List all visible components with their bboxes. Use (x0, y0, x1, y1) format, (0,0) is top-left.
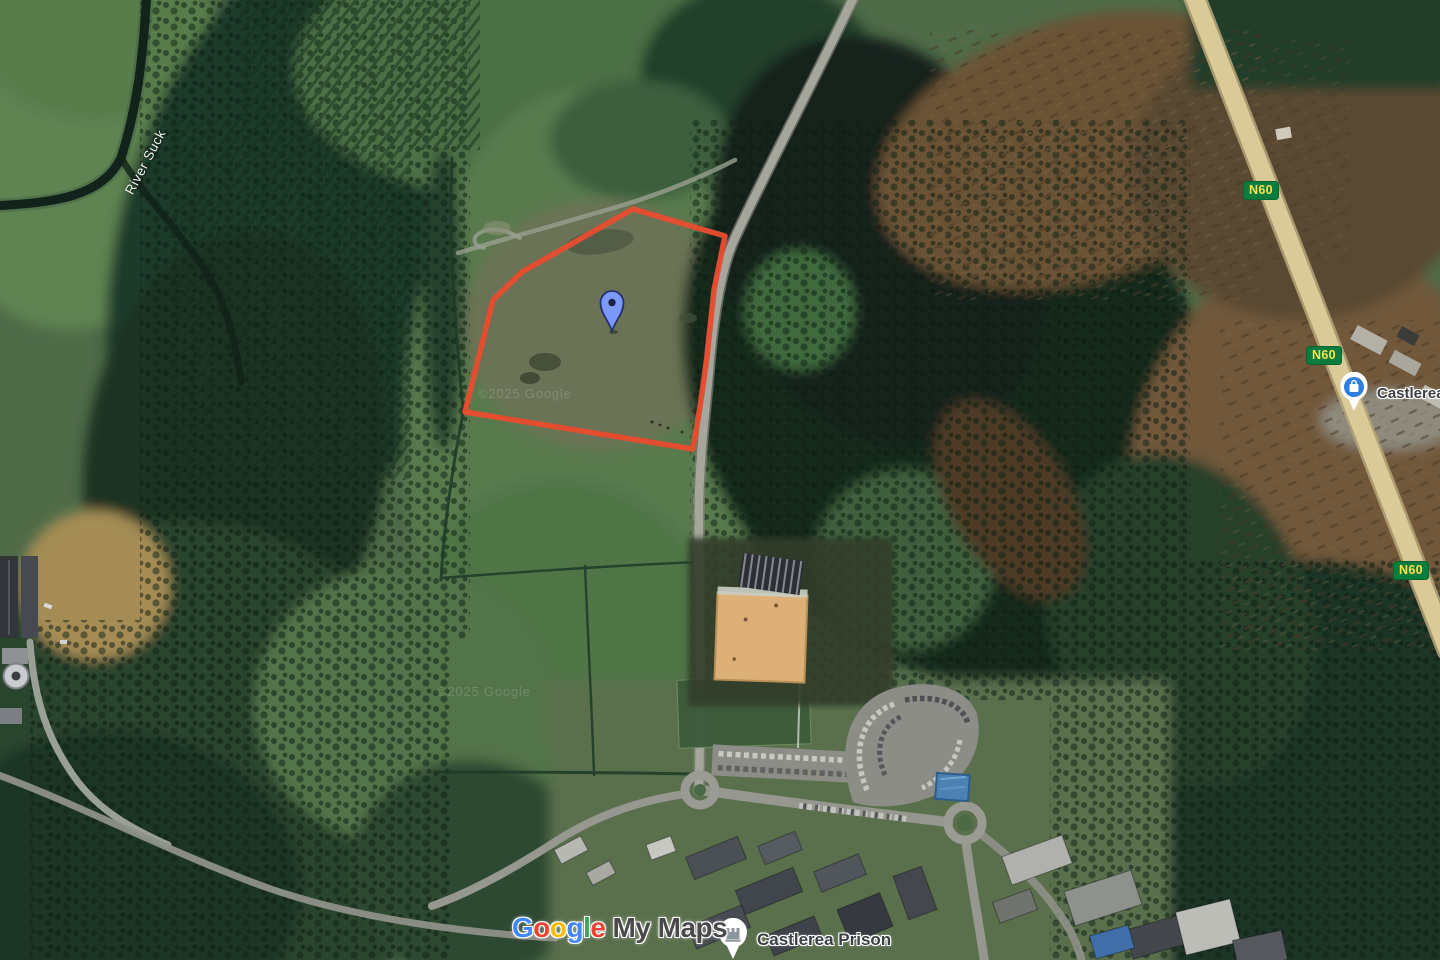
google-my-maps-watermark: G o o g l e My Maps (512, 912, 727, 944)
logo-letter: G (512, 912, 533, 944)
attribution-watermark: ©2025 Google (437, 684, 531, 699)
shopping-pin-icon (1338, 372, 1370, 414)
logo-letter: o (550, 912, 567, 944)
satellite-imagery (0, 0, 1440, 960)
poi-label: Castlerea Prison (757, 930, 891, 950)
poi-castlerea-prison[interactable]: Castlerea Prison (716, 918, 891, 960)
pool (935, 773, 970, 801)
my-maps-label: My Maps (612, 912, 727, 944)
poi-castlerea-town[interactable]: Castlerea (1338, 372, 1440, 414)
poi-label: Castlerea (1377, 385, 1440, 402)
road-badge-n60: N60 (1393, 561, 1429, 580)
road-badge-n60: N60 (1306, 346, 1342, 365)
road-badge-n60: N60 (1243, 181, 1279, 200)
logo-letter: g (567, 912, 584, 944)
logo-letter: o (533, 912, 550, 944)
courtyard (714, 586, 807, 682)
attribution-watermark: ©2025 Google (478, 386, 572, 401)
map-canvas[interactable]: River Suck N60 N60 N60 ©2025 Google ©202… (0, 0, 1440, 960)
logo-letter: e (590, 912, 605, 944)
